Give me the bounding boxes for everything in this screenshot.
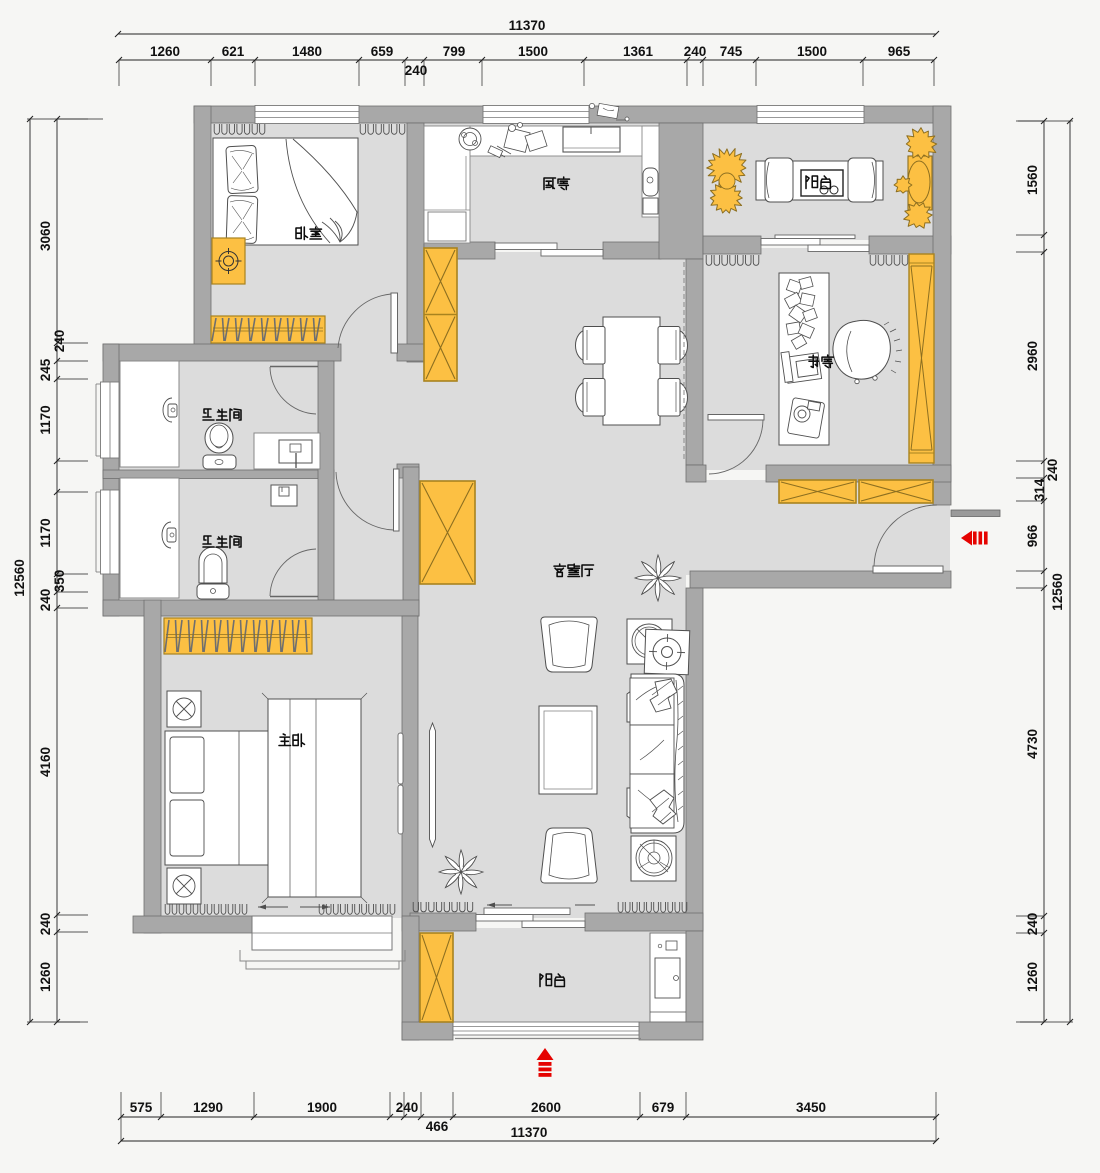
svg-text:4730: 4730 (1025, 729, 1040, 759)
svg-text:240: 240 (684, 44, 707, 59)
svg-text:350: 350 (52, 570, 67, 593)
svg-text:1500: 1500 (518, 44, 548, 59)
svg-text:1290: 1290 (193, 1100, 223, 1115)
svg-text:240: 240 (38, 589, 53, 612)
svg-text:3450: 3450 (796, 1100, 826, 1115)
svg-text:2600: 2600 (531, 1100, 561, 1115)
svg-text:1560: 1560 (1025, 165, 1040, 195)
svg-text:1260: 1260 (38, 962, 53, 992)
svg-text:1170: 1170 (38, 518, 53, 547)
svg-text:621: 621 (222, 44, 245, 59)
svg-text:1170: 1170 (38, 405, 53, 434)
svg-text:1260: 1260 (1025, 962, 1040, 992)
svg-text:240: 240 (1045, 459, 1060, 482)
svg-text:4160: 4160 (38, 747, 53, 777)
svg-text:240: 240 (405, 63, 428, 78)
svg-text:1500: 1500 (797, 44, 827, 59)
svg-text:240: 240 (52, 330, 67, 353)
svg-text:745: 745 (720, 44, 743, 59)
svg-text:679: 679 (652, 1100, 675, 1115)
svg-text:240: 240 (396, 1100, 419, 1115)
svg-text:240: 240 (38, 913, 53, 936)
svg-text:12560: 12560 (1050, 573, 1065, 611)
svg-text:1260: 1260 (150, 44, 180, 59)
svg-text:11370: 11370 (509, 18, 546, 33)
svg-text:966: 966 (1025, 524, 1040, 547)
svg-text:11370: 11370 (511, 1125, 548, 1140)
svg-text:965: 965 (888, 44, 911, 59)
svg-text:240: 240 (1025, 913, 1040, 936)
svg-text:659: 659 (371, 44, 394, 59)
svg-text:245: 245 (38, 358, 53, 381)
svg-text:2960: 2960 (1025, 341, 1040, 371)
svg-text:12560: 12560 (12, 559, 27, 597)
svg-text:575: 575 (130, 1100, 153, 1115)
svg-text:1361: 1361 (623, 44, 654, 59)
svg-text:3060: 3060 (38, 221, 53, 251)
svg-text:1900: 1900 (307, 1100, 337, 1115)
svg-text:466: 466 (426, 1119, 449, 1134)
svg-text:799: 799 (443, 44, 466, 59)
svg-text:314: 314 (1032, 478, 1047, 501)
svg-text:1480: 1480 (292, 44, 322, 59)
